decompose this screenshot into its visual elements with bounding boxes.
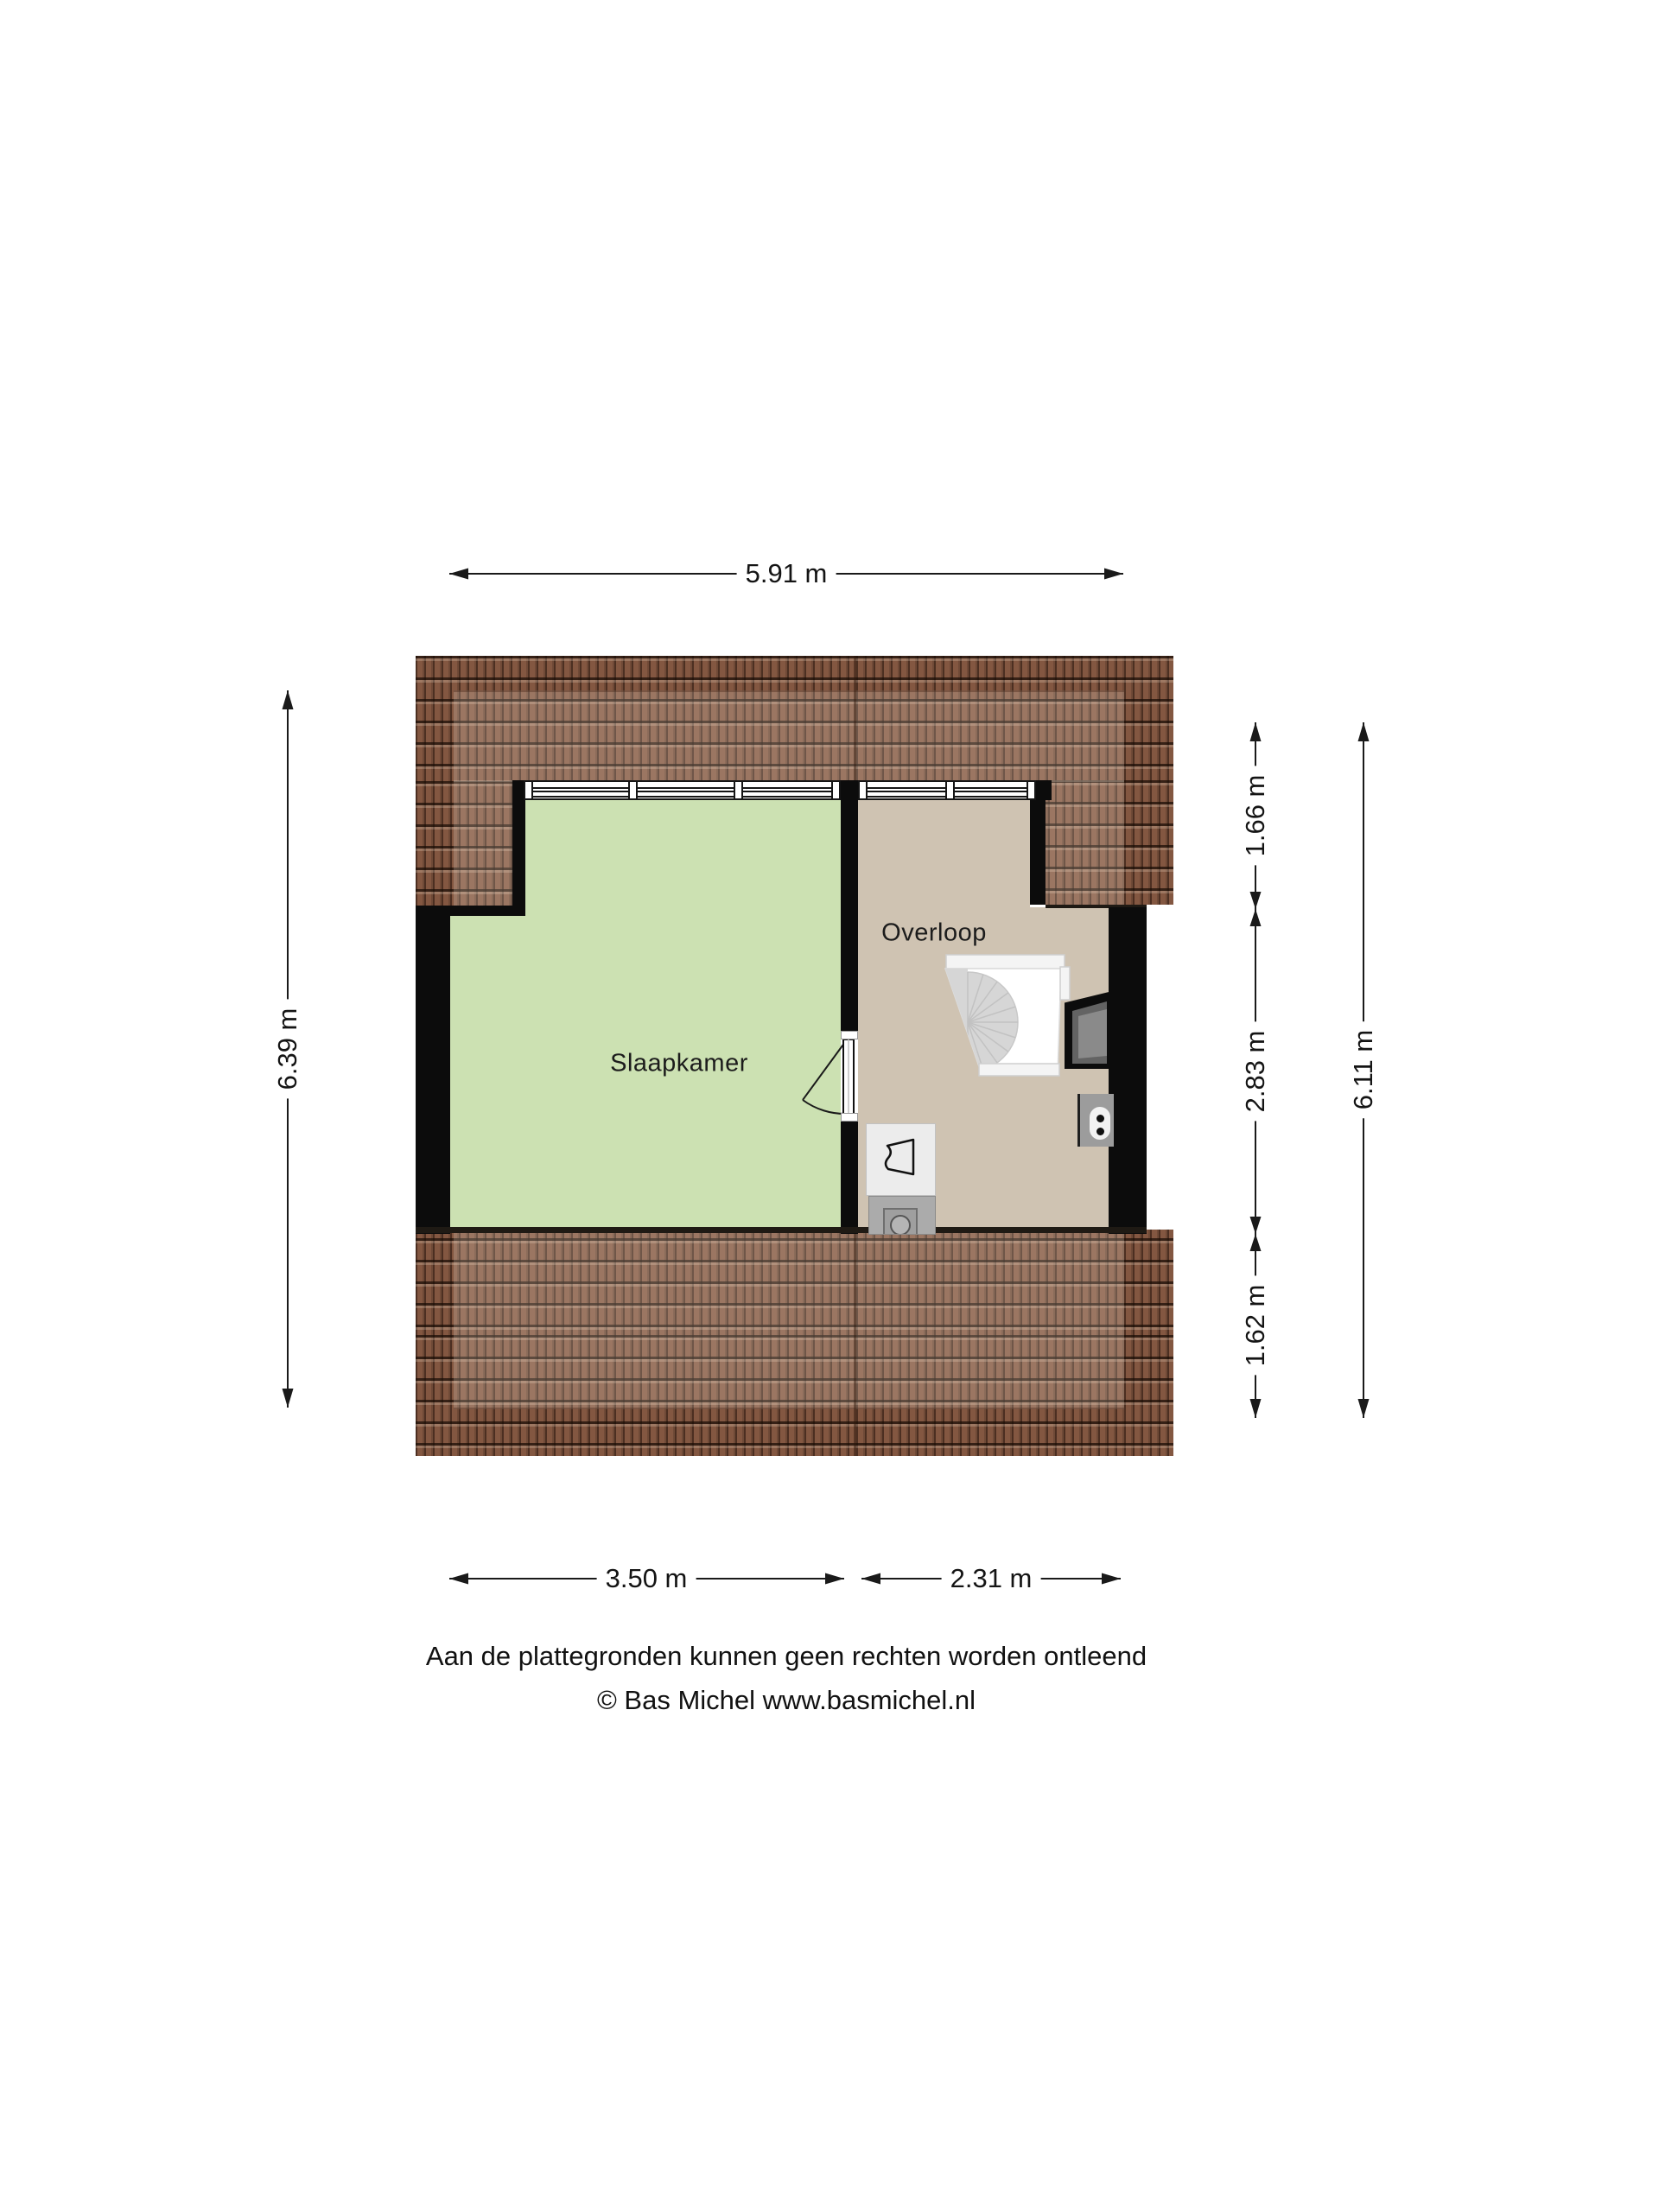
sink-unit-icon [866, 1123, 936, 1196]
footer: Aan de plattegronden kunnen geen rechten… [0, 1634, 1573, 1722]
dim-right-segment-3: 1.62 m [1239, 1276, 1272, 1376]
wall-dormer-recess [1065, 992, 1147, 1069]
window-post [945, 780, 955, 800]
roof-eave-inset-bottom [454, 1230, 1124, 1409]
bedroom-floor [525, 800, 841, 1227]
roof-eave-inset-right [1046, 780, 1124, 905]
wall-left-column [416, 916, 450, 1234]
window-post [524, 780, 533, 800]
wall-bottom-kneewall-line [416, 1227, 1147, 1233]
dim-top-width: 5.91 m [737, 557, 836, 590]
outlet-dot [1096, 1115, 1104, 1122]
wall-bedroom-notch-vertical [512, 780, 525, 916]
window-post [734, 780, 743, 800]
wall-interior-lower [841, 1122, 858, 1234]
wall-right-upper-column [1030, 800, 1046, 905]
roof-eave-inset-left [454, 780, 512, 906]
dim-right-total: 6.11 m [1347, 1021, 1380, 1118]
dim-right-segment-2: 2.83 m [1239, 1022, 1272, 1122]
footer-disclaimer: Aan de plattegronden kunnen geen rechten… [0, 1634, 1573, 1678]
window-post [858, 780, 868, 800]
bedroom-window [524, 780, 841, 800]
dim-bottom-right-width: 2.31 m [942, 1562, 1041, 1595]
room-label-slaapkamer: Slaapkamer [610, 1050, 748, 1078]
window-post [628, 780, 638, 800]
landing-floor-upper [858, 800, 1030, 907]
washing-machine-icon [868, 1196, 936, 1235]
power-outlet-icon [1077, 1094, 1114, 1147]
roof-seam-top [854, 656, 856, 780]
door-jamb [841, 1113, 858, 1122]
room-label-overloop: Overloop [881, 919, 987, 948]
floorplan-page: Slaapkamer Overloop [0, 0, 1659, 2212]
wall-interior-upper [841, 780, 858, 1031]
footer-credit: © Bas Michel www.basmichel.nl [0, 1678, 1573, 1722]
wall-right-column [1109, 907, 1147, 1234]
outlet-dot [1096, 1128, 1104, 1135]
window-post [1027, 780, 1036, 800]
dim-left-height: 6.39 m [271, 1000, 304, 1099]
window-post [831, 780, 841, 800]
roof-seam-bottom [854, 1230, 856, 1456]
dim-right-segment-1: 1.66 m [1239, 766, 1272, 866]
bedroom-floor-left [450, 916, 525, 1227]
roof-eave-inset-top [454, 690, 1124, 782]
wall-bedroom-notch-horizontal [416, 906, 525, 916]
dim-bottom-left-width: 3.50 m [597, 1562, 696, 1595]
door-jamb [841, 1031, 858, 1039]
washing-machine-drum [890, 1215, 911, 1235]
